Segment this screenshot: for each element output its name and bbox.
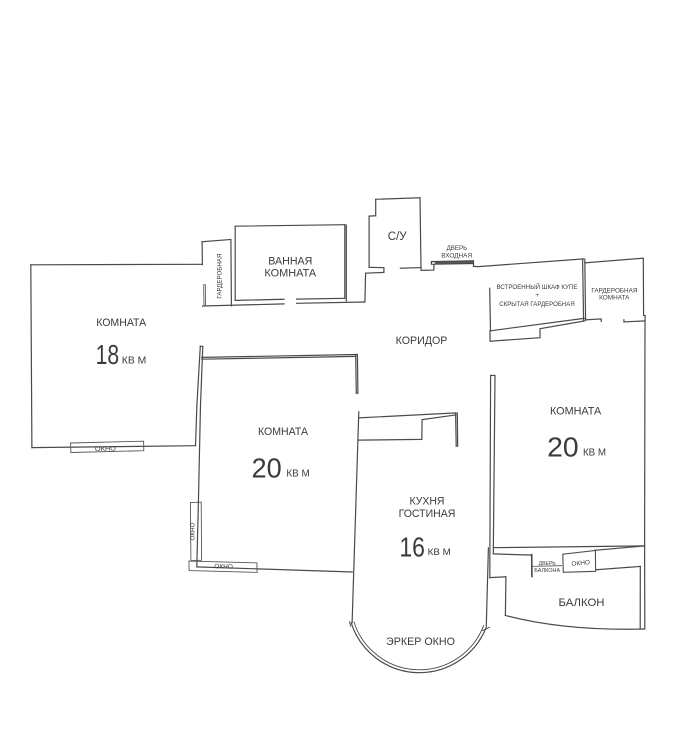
svg-text:КВ М: КВ М <box>286 467 309 479</box>
svg-text:КОМНАТА: КОМНАТА <box>550 405 602 417</box>
svg-text:ОКНО: ОКНО <box>214 563 233 570</box>
svg-text:+: + <box>535 292 539 299</box>
svg-text:КВ М: КВ М <box>583 447 606 459</box>
svg-text:КВ М: КВ М <box>122 354 147 366</box>
svg-text:20: 20 <box>252 453 282 484</box>
svg-text:ГАРДЕРОБНАЯ: ГАРДЕРОБНАЯ <box>591 287 637 294</box>
svg-text:ВХОДНАЯ: ВХОДНАЯ <box>441 252 472 259</box>
svg-text:ОКНО: ОКНО <box>190 522 197 540</box>
svg-text:16: 16 <box>399 531 425 562</box>
svg-text:ЭРКЕР ОКНО: ЭРКЕР ОКНО <box>386 636 455 648</box>
svg-text:КОРИДОР: КОРИДОР <box>396 335 448 347</box>
svg-text:ОКНО: ОКНО <box>571 559 590 568</box>
svg-text:КОМНАТА: КОМНАТА <box>96 317 146 329</box>
svg-text:КУХНЯ: КУХНЯ <box>410 495 445 507</box>
svg-text:18: 18 <box>96 339 120 370</box>
svg-text:20: 20 <box>547 431 579 462</box>
svg-text:КОМНАТА: КОМНАТА <box>264 268 316 280</box>
svg-text:КОМНАТА: КОМНАТА <box>599 295 630 302</box>
svg-text:ГАРДЕРОБНАЯ: ГАРДЕРОБНАЯ <box>217 253 224 298</box>
svg-text:ВСТРОЕННЫЙ ШКАФ КУПЕ: ВСТРОЕННЫЙ ШКАФ КУПЕ <box>497 282 578 291</box>
svg-text:С/У: С/У <box>388 231 408 243</box>
svg-text:ДВЕРЬ: ДВЕРЬ <box>447 245 468 252</box>
svg-text:СКРЫТАЯ ГАРДЕРОБНАЯ: СКРЫТАЯ ГАРДЕРОБНАЯ <box>499 301 575 308</box>
svg-text:ВАННАЯ: ВАННАЯ <box>268 256 312 268</box>
svg-text:БАЛКОНА: БАЛКОНА <box>534 568 560 574</box>
svg-text:ОКНО: ОКНО <box>95 446 116 454</box>
svg-text:КОМНАТА: КОМНАТА <box>258 426 308 438</box>
svg-text:ГОСТИНАЯ: ГОСТИНАЯ <box>399 508 456 520</box>
svg-text:КВ М: КВ М <box>428 547 451 558</box>
svg-text:БАЛКОН: БАЛКОН <box>559 597 605 609</box>
svg-text:ДВЕРЬ: ДВЕРЬ <box>539 561 557 567</box>
